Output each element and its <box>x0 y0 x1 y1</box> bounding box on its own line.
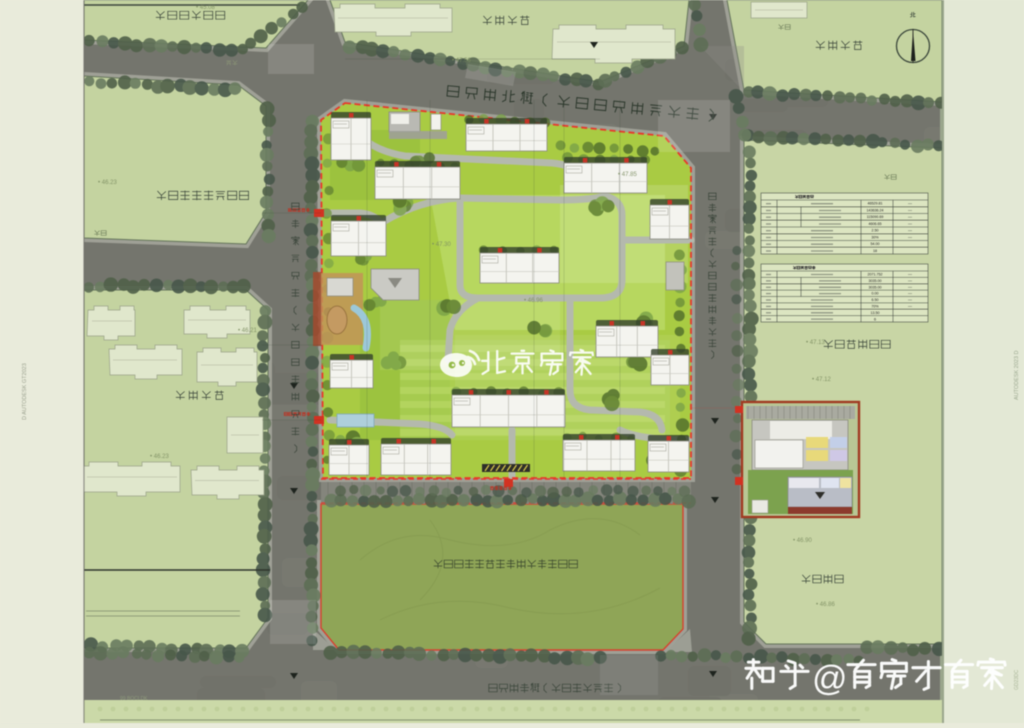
svg-text:• 46.96: • 46.96 <box>524 298 543 304</box>
svg-text:6.50: 6.50 <box>872 298 879 302</box>
svg-text:• 46.90: • 46.90 <box>793 538 812 544</box>
svg-text:• 47.85: • 47.85 <box>618 172 637 178</box>
svg-text:@: @ <box>812 659 848 698</box>
svg-text:4606.65: 4606.65 <box>869 222 882 226</box>
svg-text:• 47.30: • 47.30 <box>432 242 451 248</box>
svg-text:• 47.13: • 47.13 <box>806 340 825 346</box>
svg-text:• 46.21: • 46.21 <box>238 328 257 334</box>
svg-text:70%: 70% <box>871 305 879 309</box>
svg-text:30%: 30% <box>871 235 879 239</box>
svg-text:• 46.23: • 46.23 <box>98 180 117 186</box>
svg-text:143636.24: 143636.24 <box>867 208 884 212</box>
svg-text:54.00: 54.00 <box>871 242 880 246</box>
svg-text:6: 6 <box>874 317 876 321</box>
svg-text:D AUTODESK GT2023: D AUTODESK GT2023 <box>22 363 28 420</box>
svg-text:3035.00: 3035.00 <box>869 279 882 283</box>
svg-text:13.50: 13.50 <box>871 311 880 315</box>
svg-text:99 BOCLDK: 99 BOCLDK <box>120 696 148 702</box>
svg-text:• 45.08: • 45.08 <box>196 5 215 11</box>
svg-text:3035.00: 3035.00 <box>869 285 882 289</box>
svg-text:• 46.23: • 46.23 <box>150 454 169 460</box>
svg-text:18: 18 <box>873 249 877 253</box>
svg-text:• 47.12: • 47.12 <box>812 377 831 383</box>
svg-text:• 47.56: • 47.56 <box>452 58 471 64</box>
svg-text:115090.69: 115090.69 <box>867 215 884 219</box>
svg-text:GD23DC: GD23DC <box>1014 669 1020 690</box>
svg-text:AUTODESK 2023 D: AUTODESK 2023 D <box>1014 351 1020 400</box>
svg-text:2071.752: 2071.752 <box>868 273 883 277</box>
svg-text:• 46.86: • 46.86 <box>816 602 835 608</box>
svg-text:0.00: 0.00 <box>872 292 879 296</box>
svg-text:46529.81: 46529.81 <box>868 202 883 206</box>
svg-text:2.50: 2.50 <box>872 229 879 233</box>
